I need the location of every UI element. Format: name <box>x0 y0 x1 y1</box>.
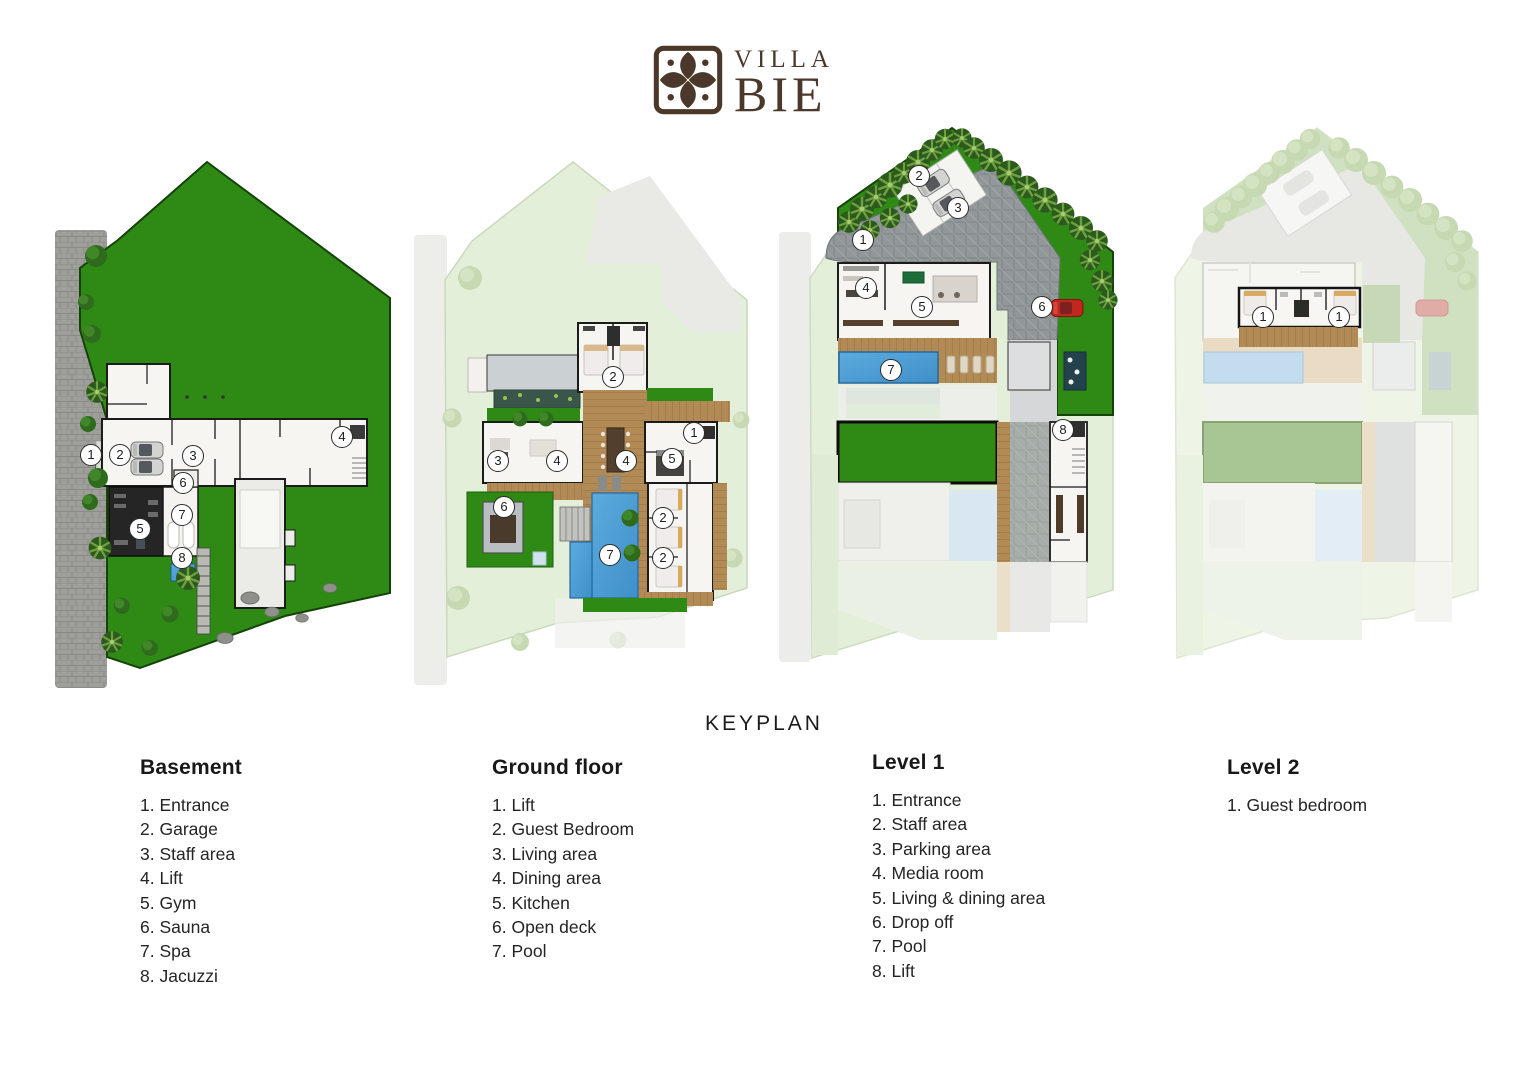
legend-item: 4. Media room <box>872 861 1045 885</box>
legend-item: 4. Dining area <box>492 866 634 890</box>
legend-item: 2. Garage <box>140 817 242 841</box>
legend-basement: Basement 1. Entrance2. Garage3. Staff ar… <box>140 756 242 988</box>
legend-item: 8. Jacuzzi <box>140 964 242 988</box>
garage-car-icon <box>131 459 163 475</box>
legend-item: 6. Sauna <box>140 915 242 939</box>
legend-item: 6. Open deck <box>492 915 634 939</box>
legend-basement-title: Basement <box>140 756 242 780</box>
level1-lift-shaft <box>1071 423 1085 437</box>
keyplan-title: KEYPLAN <box>0 712 1528 736</box>
level1-pool-table <box>903 272 924 283</box>
legend-ground-floor: Ground floor 1. Lift2. Guest Bedroom3. L… <box>492 756 634 964</box>
legend-item: 2. Guest Bedroom <box>492 817 634 841</box>
legend-item: 7. Spa <box>140 939 242 963</box>
basement-upper-room <box>107 364 170 421</box>
legend-item: 3. Living area <box>492 842 634 866</box>
ground-dining-table <box>607 428 624 472</box>
level1-red-car-icon <box>1051 300 1083 317</box>
legend-level-2: Level 2 1. Guest bedroom <box>1227 756 1367 817</box>
level1-lawn <box>838 422 997 483</box>
legend-item: 3. Parking area <box>872 837 1045 861</box>
keyplan-sheet: VILLA BIE <box>0 0 1528 1080</box>
legend-ground-floor-title: Ground floor <box>492 756 634 780</box>
legend-item: 6. Drop off <box>872 910 1045 934</box>
ground-faded-road <box>414 235 447 685</box>
level2-faded-lawn <box>1203 422 1362 483</box>
legend-item: 5. Living & dining area <box>872 886 1045 910</box>
garage-car-icon <box>131 442 163 458</box>
legend-level-1-title: Level 1 <box>872 751 1045 775</box>
level1-walkway <box>1010 422 1050 562</box>
level2-faded-pool <box>1204 352 1303 383</box>
ground-lift-shaft <box>701 426 715 439</box>
ground-floor-plan <box>414 162 749 685</box>
level1-service-rooms <box>1050 422 1087 562</box>
basement-stairs <box>197 548 210 634</box>
legend-item: 7. Pool <box>492 939 634 963</box>
basement-plan <box>55 162 390 688</box>
level-1-plan <box>779 128 1118 662</box>
legend-item: 7. Pool <box>872 934 1045 958</box>
legend-item: 3. Staff area <box>140 842 242 866</box>
level-2-plan <box>1175 128 1478 658</box>
ground-roof-strip <box>487 355 580 391</box>
legend-level-2-items: 1. Guest bedroom <box>1227 793 1367 817</box>
legend-item: 1. Entrance <box>872 788 1045 812</box>
level1-faded-road <box>779 232 811 662</box>
legend-ground-floor-items: 1. Lift2. Guest Bedroom3. Living area4. … <box>492 793 634 964</box>
legend-basement-items: 1. Entrance2. Garage3. Staff area4. Lift… <box>140 793 242 988</box>
basement-lift-shaft <box>350 425 365 439</box>
basement-sauna-room <box>174 470 198 487</box>
legend-item: 8. Lift <box>872 959 1045 983</box>
legend-item: 4. Lift <box>140 866 242 890</box>
ground-green-strip <box>487 408 580 422</box>
level2-faded-red-car <box>1416 300 1448 316</box>
legend-item: 1. Lift <box>492 793 634 817</box>
level1-pavilion <box>1008 342 1050 390</box>
legend-level-2-title: Level 2 <box>1227 756 1367 780</box>
legend-level-1-items: 1. Entrance2. Staff area3. Parking area4… <box>872 788 1045 983</box>
legend-item: 1. Entrance <box>140 793 242 817</box>
legend-item: 1. Guest bedroom <box>1227 793 1367 817</box>
level2-deck <box>1239 327 1358 347</box>
legend-item: 2. Staff area <box>872 812 1045 836</box>
legend-item: 5. Gym <box>140 891 242 915</box>
legend-level-1: Level 1 1. Entrance2. Staff area3. Parki… <box>872 751 1045 983</box>
level2-wardrobe <box>1294 300 1309 317</box>
legend-item: 5. Kitchen <box>492 891 634 915</box>
level1-pool <box>839 352 938 383</box>
